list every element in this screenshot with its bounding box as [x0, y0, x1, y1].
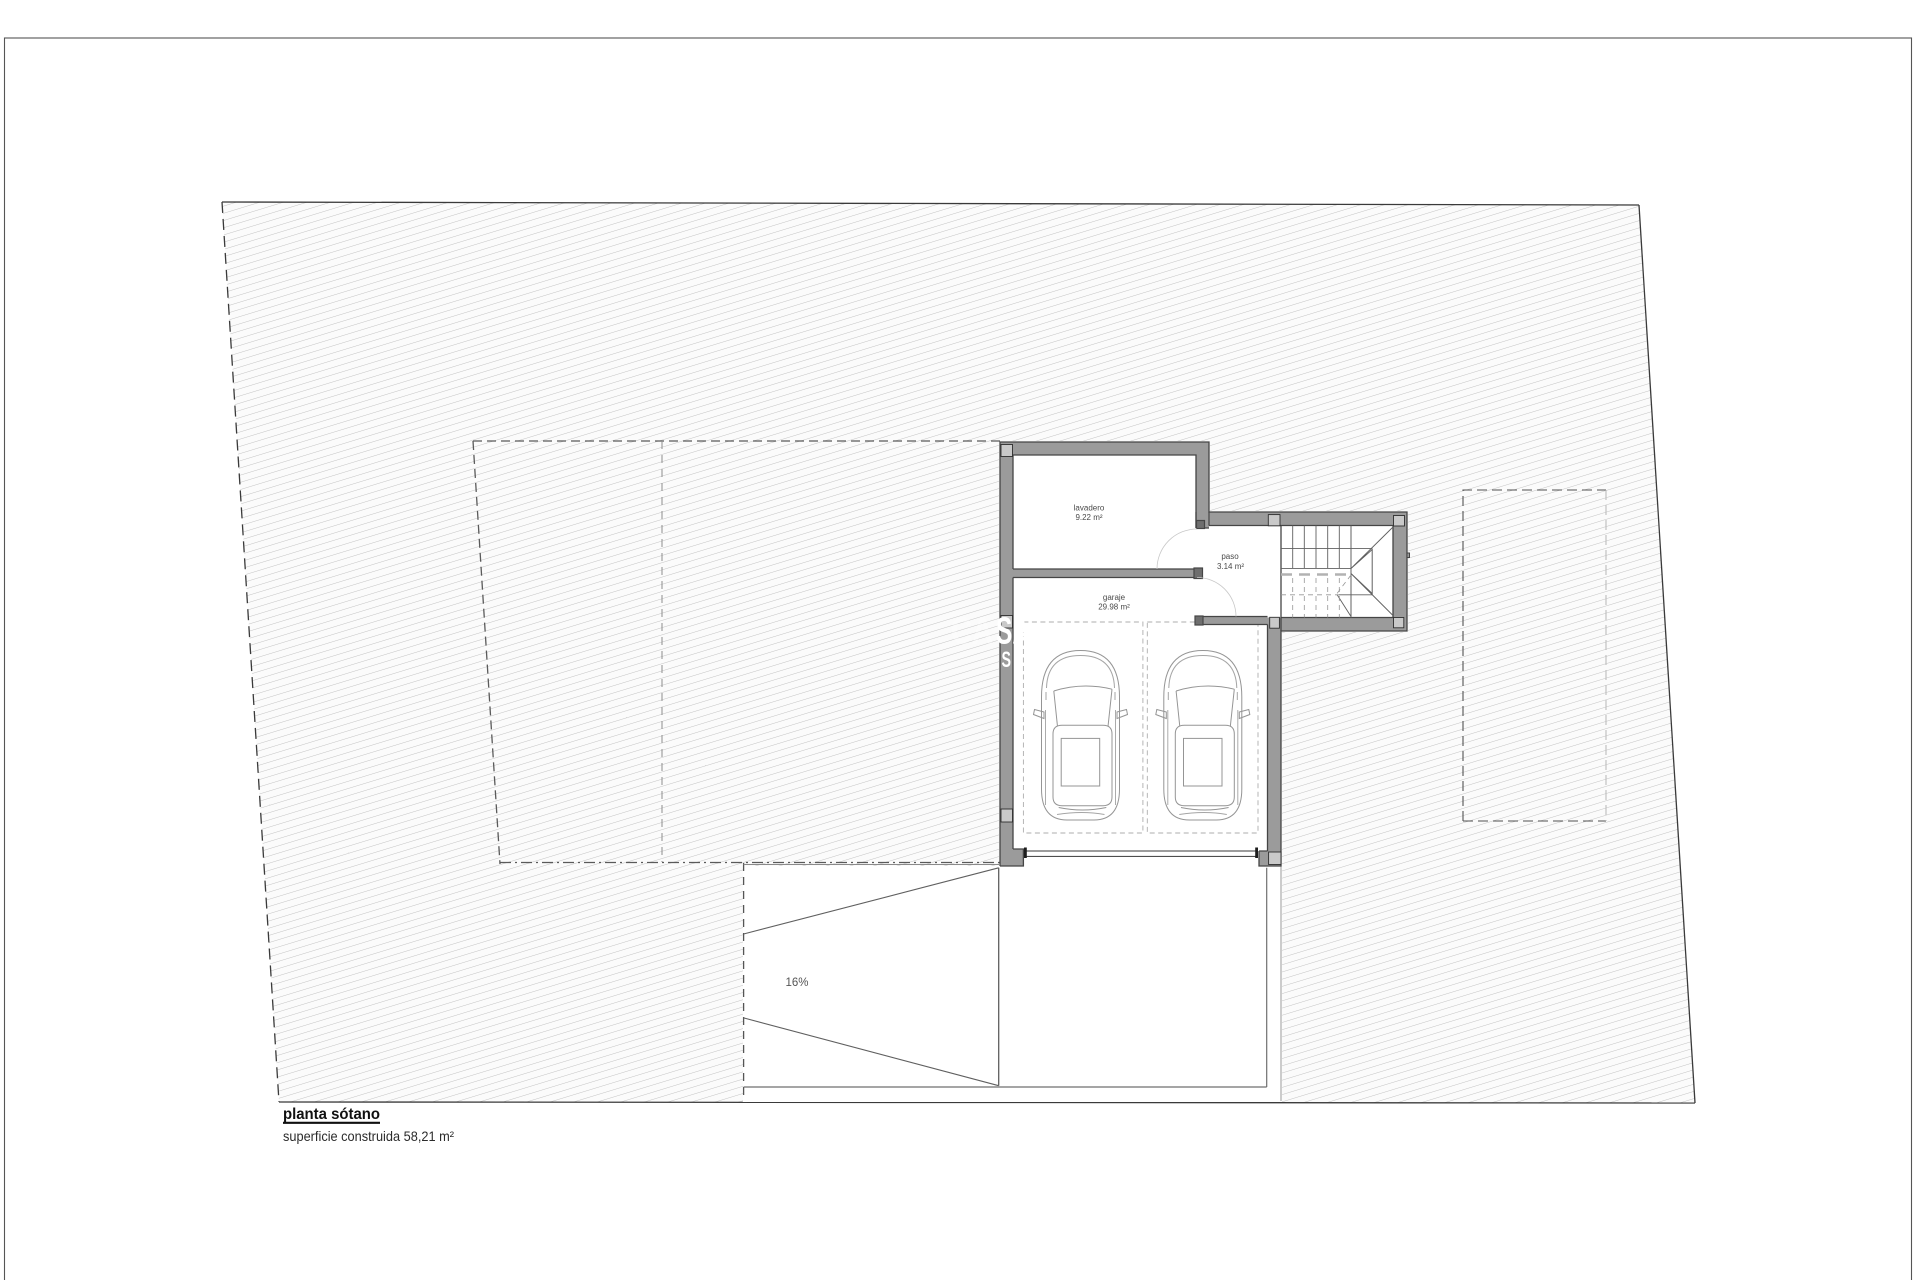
svg-text:16%: 16%	[786, 977, 809, 989]
svg-text:garaje: garaje	[1103, 593, 1126, 602]
svg-text:29.98 m²: 29.98 m²	[1098, 603, 1130, 612]
svg-text:planta sótano: planta sótano	[283, 1106, 380, 1123]
svg-text:CA: CA	[951, 611, 993, 653]
svg-text:superficie construida 58,21 m²: superficie construida 58,21 m²	[283, 1128, 454, 1144]
svg-text:9.22 m²: 9.22 m²	[1075, 513, 1102, 522]
svg-text:paso: paso	[1221, 552, 1239, 561]
svg-text:3.14 m²: 3.14 m²	[1217, 562, 1244, 571]
svg-text:S: S	[1002, 647, 1012, 672]
svg-text:lavadero: lavadero	[1074, 504, 1105, 513]
